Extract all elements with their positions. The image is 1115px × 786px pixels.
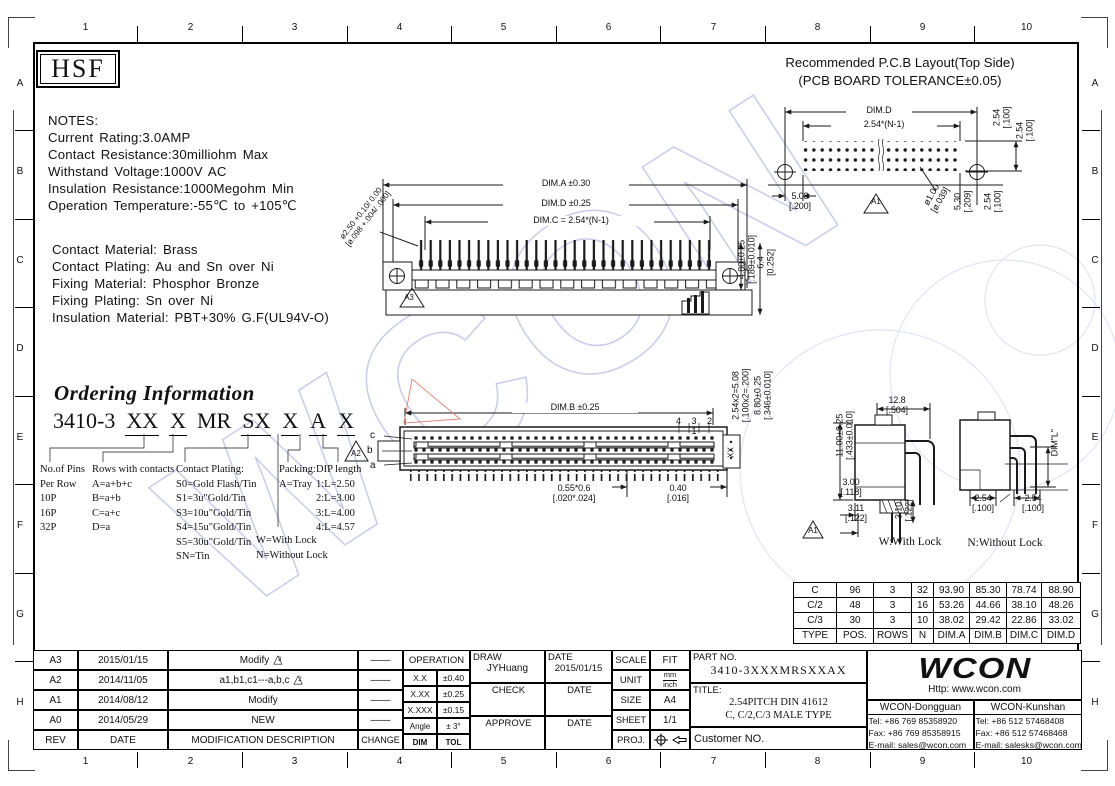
grid-row-label: D <box>10 343 30 354</box>
ordering-title: Ordering Information <box>54 381 255 406</box>
grid-col-label: 2 <box>138 756 243 767</box>
grid-row-label: A <box>1085 78 1105 89</box>
pcb-pitch-dim: 2.54 [.100] <box>984 182 1003 222</box>
front-vdim-1: 2.54x2=5.08 [.100x2=.200] <box>732 351 751 441</box>
rev-date: 2015/01/15 <box>78 650 168 670</box>
rev-desc: NEW <box>168 710 358 730</box>
office-email: E-mail: salesks@wcon.com <box>975 739 1082 750</box>
sheet-edge-line <box>1101 110 1102 645</box>
code-part-rows: X <box>169 408 187 436</box>
wlock-d2-dim: 3.11 [.122] <box>831 504 881 523</box>
wlock-d1-dim: 3.00 [.118] <box>826 478 876 497</box>
rev-header-rev: REV <box>33 730 78 750</box>
tol-value: ±0.25 <box>437 686 470 702</box>
check-cell: CHECK <box>470 683 545 716</box>
corner-mark <box>1081 17 1108 48</box>
notes-heading: NOTES: <box>48 112 98 129</box>
tol-label: X.X <box>403 670 437 686</box>
grid-row-label: C <box>10 255 30 266</box>
office-dongguan: WCON-Dongguan Tel: +86 769 85358920 Fax:… <box>867 700 974 750</box>
rev-date: 2014/05/29 <box>78 710 168 730</box>
scale-label: SCALE <box>612 650 650 670</box>
sheet-value: 1/1 <box>650 710 690 730</box>
rev-date: 2014/11/05 <box>78 670 168 690</box>
company-url: Http: www.wcon.com <box>928 684 1021 696</box>
company-logo: WCON <box>918 654 1031 684</box>
tol-label: X.XXX <box>403 702 437 718</box>
code-part-series: 3410-3 <box>53 408 115 434</box>
pcb-layout-title: Recommended P.C.B Layout(Top Side) <box>750 55 1050 70</box>
approve-cell: APPROVE <box>470 716 545 750</box>
side-view-drawing <box>330 170 790 330</box>
grid-col-label: 2 <box>138 22 243 33</box>
hsf-logo: HSF <box>36 50 120 88</box>
grid-col-label: 8 <box>765 22 870 33</box>
office-fax: Fax: +86 512 57468468 <box>975 727 1082 739</box>
title-cell: TITLE: 2.54PITCH DIN 41612 C, C/2,C/3 MA… <box>690 683 867 727</box>
front-end-gap-dim: 0.40 [.016] <box>653 484 703 503</box>
code-part-pins: XX <box>125 408 159 436</box>
front-dim-b: DIM.B ±0.25 <box>512 403 638 413</box>
wlock-d3-dim: 3.10 [.122] <box>895 486 914 536</box>
office-email: E-mail: sales@wcon.com <box>868 739 974 750</box>
rev-id: A0 <box>33 710 78 730</box>
company-logo-cell: WCON Http: www.wcon.com <box>867 650 1082 700</box>
side-datum-label: A3 <box>396 293 422 302</box>
grid-row-label: G <box>10 609 30 620</box>
side-dim-a: DIM.A ±0.30 <box>503 179 629 189</box>
grid-col-label: 10 <box>974 756 1079 767</box>
corner-mark <box>8 17 35 48</box>
drawing-title-line1: 2.54PITCH DIN 41612 <box>691 696 866 709</box>
side-dim-d: DIM.D ±0.25 <box>503 199 629 209</box>
rev-id: A1 <box>33 690 78 710</box>
approve-date-cell: DATE <box>545 716 612 750</box>
unit-value: mminch <box>650 670 690 690</box>
grid-col-label: 10 <box>974 22 1079 33</box>
sheet-edge-line <box>13 110 14 645</box>
office-name: WCON-Kunshan <box>975 701 1081 715</box>
table-row: C/33031038.0229.4222.8633.02 <box>794 613 1081 628</box>
part-number: 3410-3XXXMRSXXAX <box>691 663 866 678</box>
grid-col-label: 8 <box>765 756 870 767</box>
unit-label: UNIT <box>612 670 650 690</box>
drafter-name: JYHuang <box>471 663 544 674</box>
tol-value: ± 3° <box>437 718 470 734</box>
side-height2-dim: 6.4 [0.252] <box>757 235 776 291</box>
ordering-col-lock: W=With Lock N=Without Lock <box>256 534 346 563</box>
grid-col-label: 5 <box>451 756 556 767</box>
grid-row-label: E <box>10 432 30 443</box>
tol-value: ±0.15 <box>437 702 470 718</box>
ordering-code: 3410-3XXXMRSXXAX <box>53 408 365 436</box>
wlock-datum-label: A1 <box>799 526 827 535</box>
dimension-spec-table: C9633293.9085.3078.7488.90 C/24831653.26… <box>793 582 1081 644</box>
tolerance-title: OPERATION <box>403 650 470 670</box>
size-label: SIZE <box>612 690 650 710</box>
table-header-row: TYPEPOS.ROWSNDIM.ADIM.BDIM.CDIM.D <box>794 628 1081 643</box>
grid-col-label: 3 <box>242 22 347 33</box>
check-date-cell: DATE <box>545 683 612 716</box>
sheet-label: SHEET <box>612 710 650 730</box>
part-no-cell: PART NO. 3410-3XXXMRSXXAX <box>690 650 867 683</box>
tol-label: Angle <box>403 718 437 734</box>
front-datum-label: A2 <box>343 449 369 458</box>
grid-row-label: A <box>10 78 30 89</box>
draw-date: 2015/01/15 <box>546 663 611 674</box>
tol-label: X.XX <box>403 686 437 702</box>
hsf-logo-text: HSF <box>40 54 116 84</box>
tol-label: DIM <box>403 734 437 750</box>
front-end-code: XX <box>727 439 736 467</box>
pcb-row-pitch-2: 2.54 [.100] <box>1016 111 1035 151</box>
rev-id: A3 <box>33 650 78 670</box>
rev-desc: Modify <box>168 690 358 710</box>
grid-col-label: 5 <box>451 22 556 33</box>
customer-no-cell: Customer NO. <box>690 727 867 750</box>
rev-change: —— <box>358 670 403 690</box>
ordering-col-pins: No.of Pins Per Row 10P 16P 32P <box>40 463 98 536</box>
projection-label: PROJ. <box>612 730 650 750</box>
grid-col-label: 4 <box>347 756 452 767</box>
rev-header-date: DATE <box>78 730 168 750</box>
revision-triangle-icon: △3 <box>273 654 286 666</box>
grid-col-label: 9 <box>870 756 975 767</box>
code-part-plating: SX <box>241 408 271 436</box>
front-pin-numbers: 4 3 2 1 <box>670 416 722 436</box>
grid-col-label: 3 <box>242 756 347 767</box>
office-tel: Tel: +86 512 57468408 <box>975 715 1082 727</box>
front-row-c-label: c <box>370 430 375 441</box>
front-vdim-2: 8.80±0.25 [.346±0.010] <box>754 351 773 441</box>
first-angle-projection-icon <box>653 733 687 747</box>
rev-change: —— <box>358 650 403 670</box>
scale-value: FIT <box>650 650 690 670</box>
grid-col-label: 6 <box>556 756 661 767</box>
rev-change: —— <box>358 690 403 710</box>
grid-col-label: 9 <box>870 22 975 33</box>
tol-value: TOL <box>437 734 470 750</box>
rev-header-desc: MODIFICATION DESCRIPTION <box>168 730 358 750</box>
grid-row-label: H <box>10 697 30 708</box>
side-height-dim: 4.80±0.25 [.189±0.010] <box>738 225 757 295</box>
notes-electrical: Current Rating:3.0AMP Contact Resistance… <box>48 129 378 214</box>
office-tel: Tel: +86 769 85358920 <box>868 715 974 727</box>
corner-mark <box>8 740 35 771</box>
rev-id: A2 <box>33 670 78 690</box>
pcb-row-pitch-1: 2.54 [.100] <box>993 98 1012 138</box>
code-part-mr: MR <box>197 408 231 434</box>
nlock-dim-l: DIM"L" <box>1050 416 1060 470</box>
wlock-height-dim: 11.00±0.25 [.433±0.010] <box>836 396 855 476</box>
size-value: A4 <box>650 690 690 710</box>
grid-col-label: 7 <box>661 22 766 33</box>
pcb-datum-label: A1 <box>861 197 891 206</box>
wlock-width-dim: 12.8 [.504] <box>872 396 922 415</box>
grid-row-label: B <box>10 166 30 177</box>
side-dim-c: DIM.C = 2.54*(N-1) <box>488 216 654 226</box>
rev-desc: Modify△3 <box>168 650 358 670</box>
grid-row-label: F <box>10 520 30 531</box>
pcb-layout-tolerance: (PCB BOARD TOLERANCE±0.05) <box>750 73 1050 88</box>
grid-col-label: 1 <box>33 756 138 767</box>
front-row-a-label: a <box>370 460 376 471</box>
table-row: C9633293.9085.3078.7488.90 <box>794 583 1081 598</box>
grid-col-label: 6 <box>556 22 661 33</box>
grid-row-label: G <box>1085 609 1105 620</box>
nlock-pitch-2: 2.54 [.100] <box>1008 494 1058 513</box>
nlock-pitch-1: 2.54 [.100] <box>958 494 1008 513</box>
engineering-drawing-page: WCON 1 2 3 4 5 6 7 8 9 10 1 2 3 4 5 6 7 … <box>0 0 1115 786</box>
rev-change: —— <box>358 710 403 730</box>
pcb-dim-d: DIM.D <box>846 106 912 116</box>
tol-value: ±0.40 <box>437 670 470 686</box>
nlock-caption: N:Without Lock <box>945 537 1065 549</box>
grid-row-label: C <box>1085 255 1105 266</box>
front-view-drawing <box>340 375 790 530</box>
grid-col-label: 7 <box>661 756 766 767</box>
office-kunshan: WCON-Kunshan Tel: +86 512 57468408 Fax: … <box>974 700 1082 750</box>
grid-row-label: H <box>1085 697 1105 708</box>
code-part-packing: A <box>309 408 327 436</box>
without-lock-view-drawing <box>950 400 1100 560</box>
front-tail-dim: 0.55*0.6 [.020*.024] <box>524 484 624 503</box>
code-part-dip: X <box>337 408 355 436</box>
grid-row-label: D <box>1085 343 1105 354</box>
corner-mark <box>1081 740 1108 771</box>
rev-header-change: CHANGE <box>358 730 403 750</box>
draw-date-cell: DATE 2015/01/15 <box>545 650 612 683</box>
grid-col-label: 4 <box>347 22 452 33</box>
pcb-pitch-span: 2.54*(N-1) <box>831 120 937 130</box>
office-fax: Fax: +86 769 85358915 <box>868 727 974 739</box>
rev-date: 2014/08/12 <box>78 690 168 710</box>
office-name: WCON-Dongguan <box>868 701 973 715</box>
drawing-title-line2: C, C/2,C/3 MALE TYPE <box>691 709 866 722</box>
projection-symbol-cell <box>650 730 690 750</box>
pcb-edge-dim: 5.30 [.209] <box>954 182 973 222</box>
draw-cell: DRAW JYHuang <box>470 650 545 683</box>
ordering-col-dip: DIP length 1:L=2.50 2:L=3.00 3:L=4.00 4:… <box>316 463 368 536</box>
table-row: C/24831653.2644.6638.1048.26 <box>794 598 1081 613</box>
pcb-offset-dim: 5.08 [.200] <box>775 192 825 211</box>
revision-triangle-icon: △2 <box>294 674 307 686</box>
grid-col-label: 1 <box>33 22 138 33</box>
rev-desc: a1,b1,c1---a,b,c△2 <box>168 670 358 690</box>
code-part-lock: X <box>281 408 299 436</box>
ordering-col-rows: Rows with contacts A=a+b+c B=a+b C=a+c D… <box>92 463 184 536</box>
